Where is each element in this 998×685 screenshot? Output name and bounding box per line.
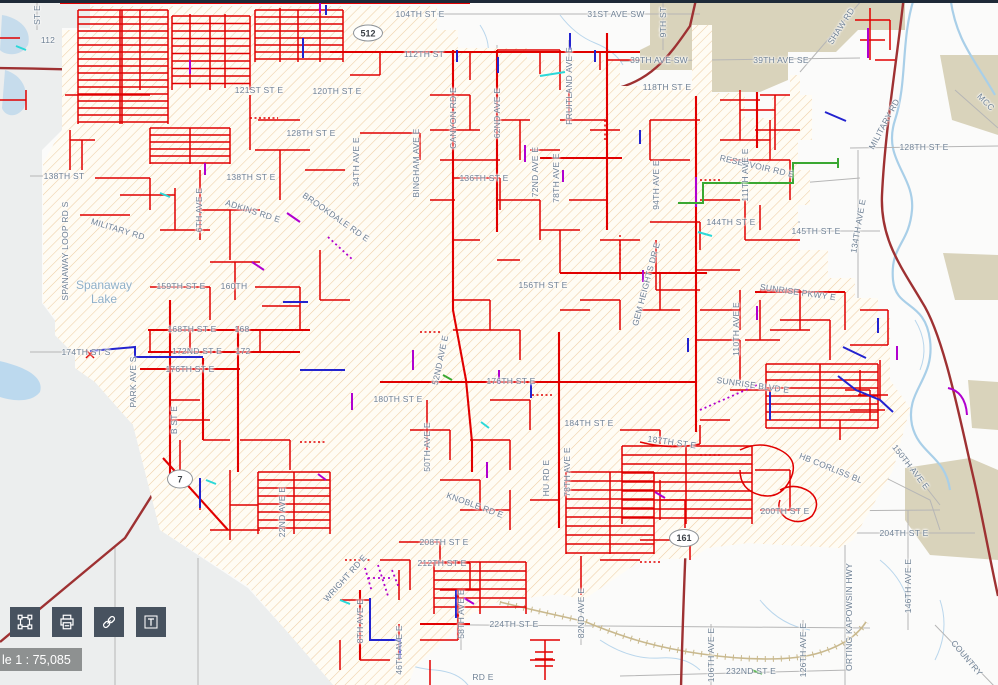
link-icon xyxy=(100,613,118,631)
printer-icon xyxy=(58,613,76,631)
top-edge-strip xyxy=(0,0,998,3)
text-icon xyxy=(142,613,160,631)
scale-text: le 1 : 75,085 xyxy=(2,653,71,667)
text-label-button[interactable] xyxy=(136,607,166,637)
print-button[interactable] xyxy=(52,607,82,637)
scale-indicator: le 1 : 75,085 xyxy=(0,648,82,671)
map-canvas[interactable]: 104TH ST E31ST AVE SWST E11239TH AVE SW3… xyxy=(0,0,998,685)
purple-dotted-lines xyxy=(328,237,757,596)
extent-icon xyxy=(16,613,34,631)
blue-utility-lines xyxy=(90,5,893,658)
share-link-button[interactable] xyxy=(94,607,124,637)
green-utility-lines xyxy=(443,158,838,674)
zoom-extent-button[interactable] xyxy=(10,607,40,637)
map-toolbar xyxy=(10,607,166,637)
utility-layer xyxy=(0,0,998,685)
